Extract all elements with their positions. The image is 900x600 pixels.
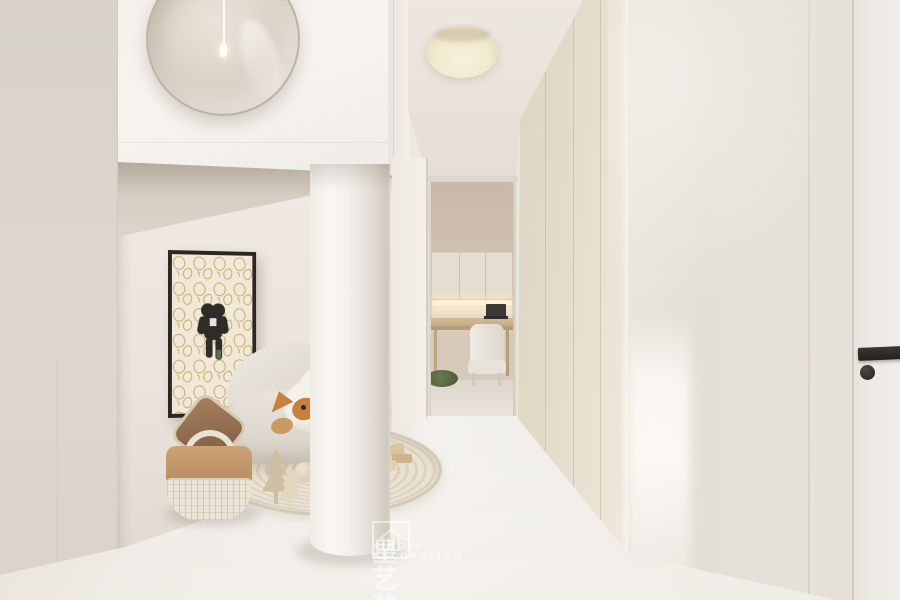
wall-light-haze [608,0,828,310]
left-wall-seam [57,360,58,595]
column-top-shadow [310,164,390,190]
study-nook-doorway [426,176,518,416]
watermark-english: XINGYI DECORATION [372,542,464,562]
cabinet-seam [459,253,460,301]
ceiling-lamp [426,26,498,78]
study-wall-cabinets [432,252,512,300]
wardrobe-door-seam [573,10,574,490]
laptop-base [484,316,508,319]
doorway-top-reveal [426,176,518,182]
door-lock-knob [860,365,875,380]
pendant-cord [223,0,225,48]
study-chair-backrest [470,324,504,364]
support-column [310,164,390,556]
plush-eye [301,405,306,410]
loft-box-panel-seam [118,142,392,143]
loft-box-side-face [388,0,410,184]
desk-leg [506,330,509,376]
loft-box-side-trim [393,0,394,176]
wall-light-patch [628,315,690,570]
chair-leg [472,373,475,386]
doorway-right-jamb [513,176,518,416]
interior-render-kids-room-hallway: 星艺装饰 XINGYI DECORATION [0,0,900,600]
pendant-bulb-icon [220,44,227,57]
chair-leg [498,373,501,386]
door-handle [858,346,900,361]
left-wall [0,0,120,600]
cabinet-seam [485,253,486,301]
white-door [852,0,900,600]
basket-leather-band [166,446,252,480]
study-chair-seat [468,360,506,374]
woven-storage-basket [167,478,251,520]
wardrobe-door-seam [545,40,546,460]
wall-corner-seam [808,0,810,600]
right-foreground-wall [628,0,900,600]
lamp-rim-shadow [434,28,490,42]
wardrobe-door-seam [600,0,601,520]
